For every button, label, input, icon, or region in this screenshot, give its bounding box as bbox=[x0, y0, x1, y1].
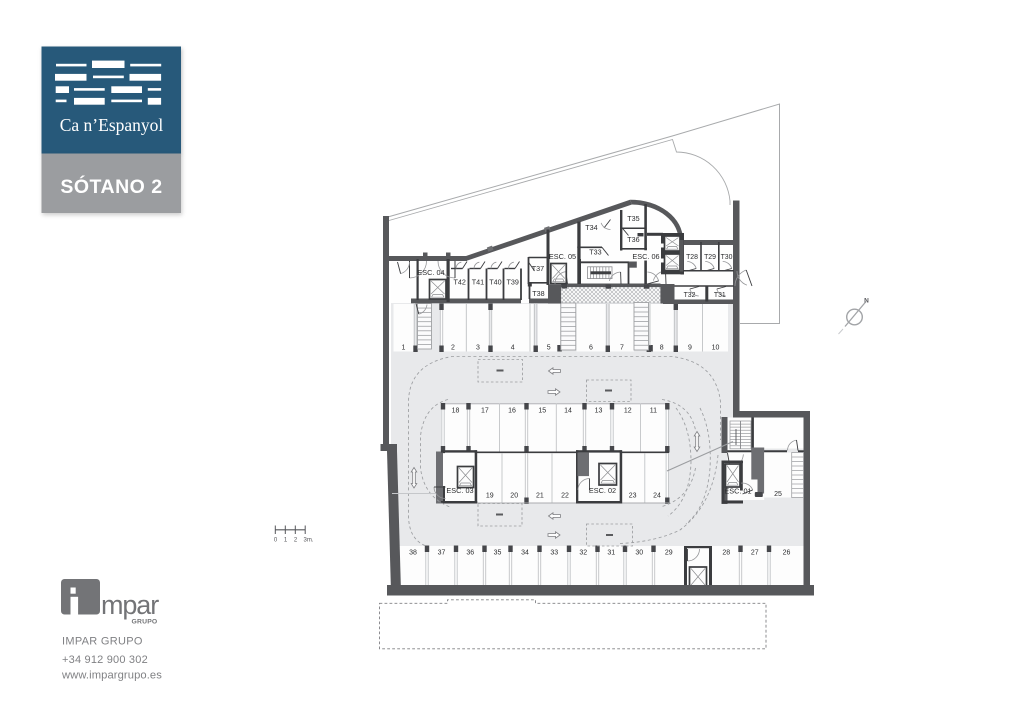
svg-text:37: 37 bbox=[438, 550, 446, 557]
svg-text:8: 8 bbox=[660, 345, 664, 352]
svg-text:30: 30 bbox=[635, 550, 643, 557]
svg-text:14: 14 bbox=[564, 408, 572, 415]
svg-text:15: 15 bbox=[538, 408, 546, 415]
svg-text:T37: T37 bbox=[532, 264, 544, 273]
svg-text:+34 912 900 302: +34 912 900 302 bbox=[62, 654, 148, 666]
svg-text:T29: T29 bbox=[704, 254, 716, 261]
svg-text:26: 26 bbox=[783, 550, 791, 557]
svg-text:T42: T42 bbox=[454, 278, 466, 287]
svg-text:T35: T35 bbox=[627, 214, 639, 223]
svg-text:T40: T40 bbox=[489, 278, 501, 287]
svg-text:6: 6 bbox=[589, 345, 593, 352]
svg-text:T34: T34 bbox=[585, 223, 597, 232]
svg-text:3: 3 bbox=[476, 345, 480, 352]
svg-text:ESC. 01: ESC. 01 bbox=[724, 486, 751, 495]
svg-text:SÓTANO 2: SÓTANO 2 bbox=[60, 174, 162, 198]
svg-text:ESC. 06: ESC. 06 bbox=[632, 252, 659, 261]
svg-text:10: 10 bbox=[712, 345, 720, 352]
svg-text:34: 34 bbox=[521, 550, 529, 557]
svg-text:T28: T28 bbox=[686, 254, 698, 261]
svg-text:Ca n’Espanyol: Ca n’Espanyol bbox=[60, 115, 164, 135]
svg-text:22: 22 bbox=[561, 493, 569, 500]
svg-text:ESC. 04: ESC. 04 bbox=[417, 268, 444, 277]
svg-text:1: 1 bbox=[402, 345, 406, 352]
svg-text:3m.: 3m. bbox=[304, 538, 314, 544]
svg-text:11: 11 bbox=[650, 408, 657, 415]
svg-text:ESC. 05: ESC. 05 bbox=[549, 252, 576, 261]
svg-text:27: 27 bbox=[751, 550, 759, 557]
svg-text:T39: T39 bbox=[507, 278, 519, 287]
svg-text:24: 24 bbox=[653, 493, 661, 500]
svg-text:35: 35 bbox=[494, 550, 502, 557]
svg-text:T30: T30 bbox=[721, 254, 733, 261]
svg-text:5: 5 bbox=[547, 345, 551, 352]
svg-text:ESC. 03: ESC. 03 bbox=[446, 486, 473, 495]
svg-text:T41: T41 bbox=[472, 278, 484, 287]
svg-text:36: 36 bbox=[466, 550, 474, 557]
svg-text:31: 31 bbox=[607, 550, 615, 557]
svg-text:19: 19 bbox=[486, 493, 494, 500]
svg-text:23: 23 bbox=[629, 493, 637, 500]
svg-text:T33: T33 bbox=[589, 248, 601, 257]
svg-text:www.impargrupo.es: www.impargrupo.es bbox=[61, 670, 162, 682]
svg-text:32: 32 bbox=[579, 550, 587, 557]
svg-text:9: 9 bbox=[688, 345, 692, 352]
svg-text:T32: T32 bbox=[684, 292, 696, 299]
svg-text:33: 33 bbox=[550, 550, 558, 557]
svg-text:7: 7 bbox=[620, 345, 624, 352]
svg-text:2: 2 bbox=[451, 345, 455, 352]
svg-text:18: 18 bbox=[452, 408, 460, 415]
svg-text:25: 25 bbox=[774, 491, 782, 498]
svg-text:38: 38 bbox=[409, 550, 417, 557]
svg-text:T31: T31 bbox=[714, 292, 726, 299]
svg-text:mpar: mpar bbox=[101, 590, 159, 620]
svg-text:17: 17 bbox=[481, 408, 489, 415]
svg-text:16: 16 bbox=[508, 408, 516, 415]
svg-text:T36: T36 bbox=[627, 235, 639, 244]
svg-text:29: 29 bbox=[665, 550, 673, 557]
svg-text:12: 12 bbox=[624, 408, 632, 415]
svg-text:N: N bbox=[864, 298, 869, 305]
svg-text:4: 4 bbox=[511, 345, 515, 352]
svg-text:T38: T38 bbox=[532, 289, 544, 298]
svg-text:ESC. 02: ESC. 02 bbox=[589, 486, 616, 495]
svg-text:28: 28 bbox=[722, 550, 730, 557]
svg-text:21: 21 bbox=[536, 493, 544, 500]
svg-text:IMPAR GRUPO: IMPAR GRUPO bbox=[62, 636, 143, 648]
svg-text:13: 13 bbox=[595, 408, 603, 415]
svg-text:GRUPO: GRUPO bbox=[132, 619, 158, 626]
svg-text:20: 20 bbox=[510, 493, 518, 500]
